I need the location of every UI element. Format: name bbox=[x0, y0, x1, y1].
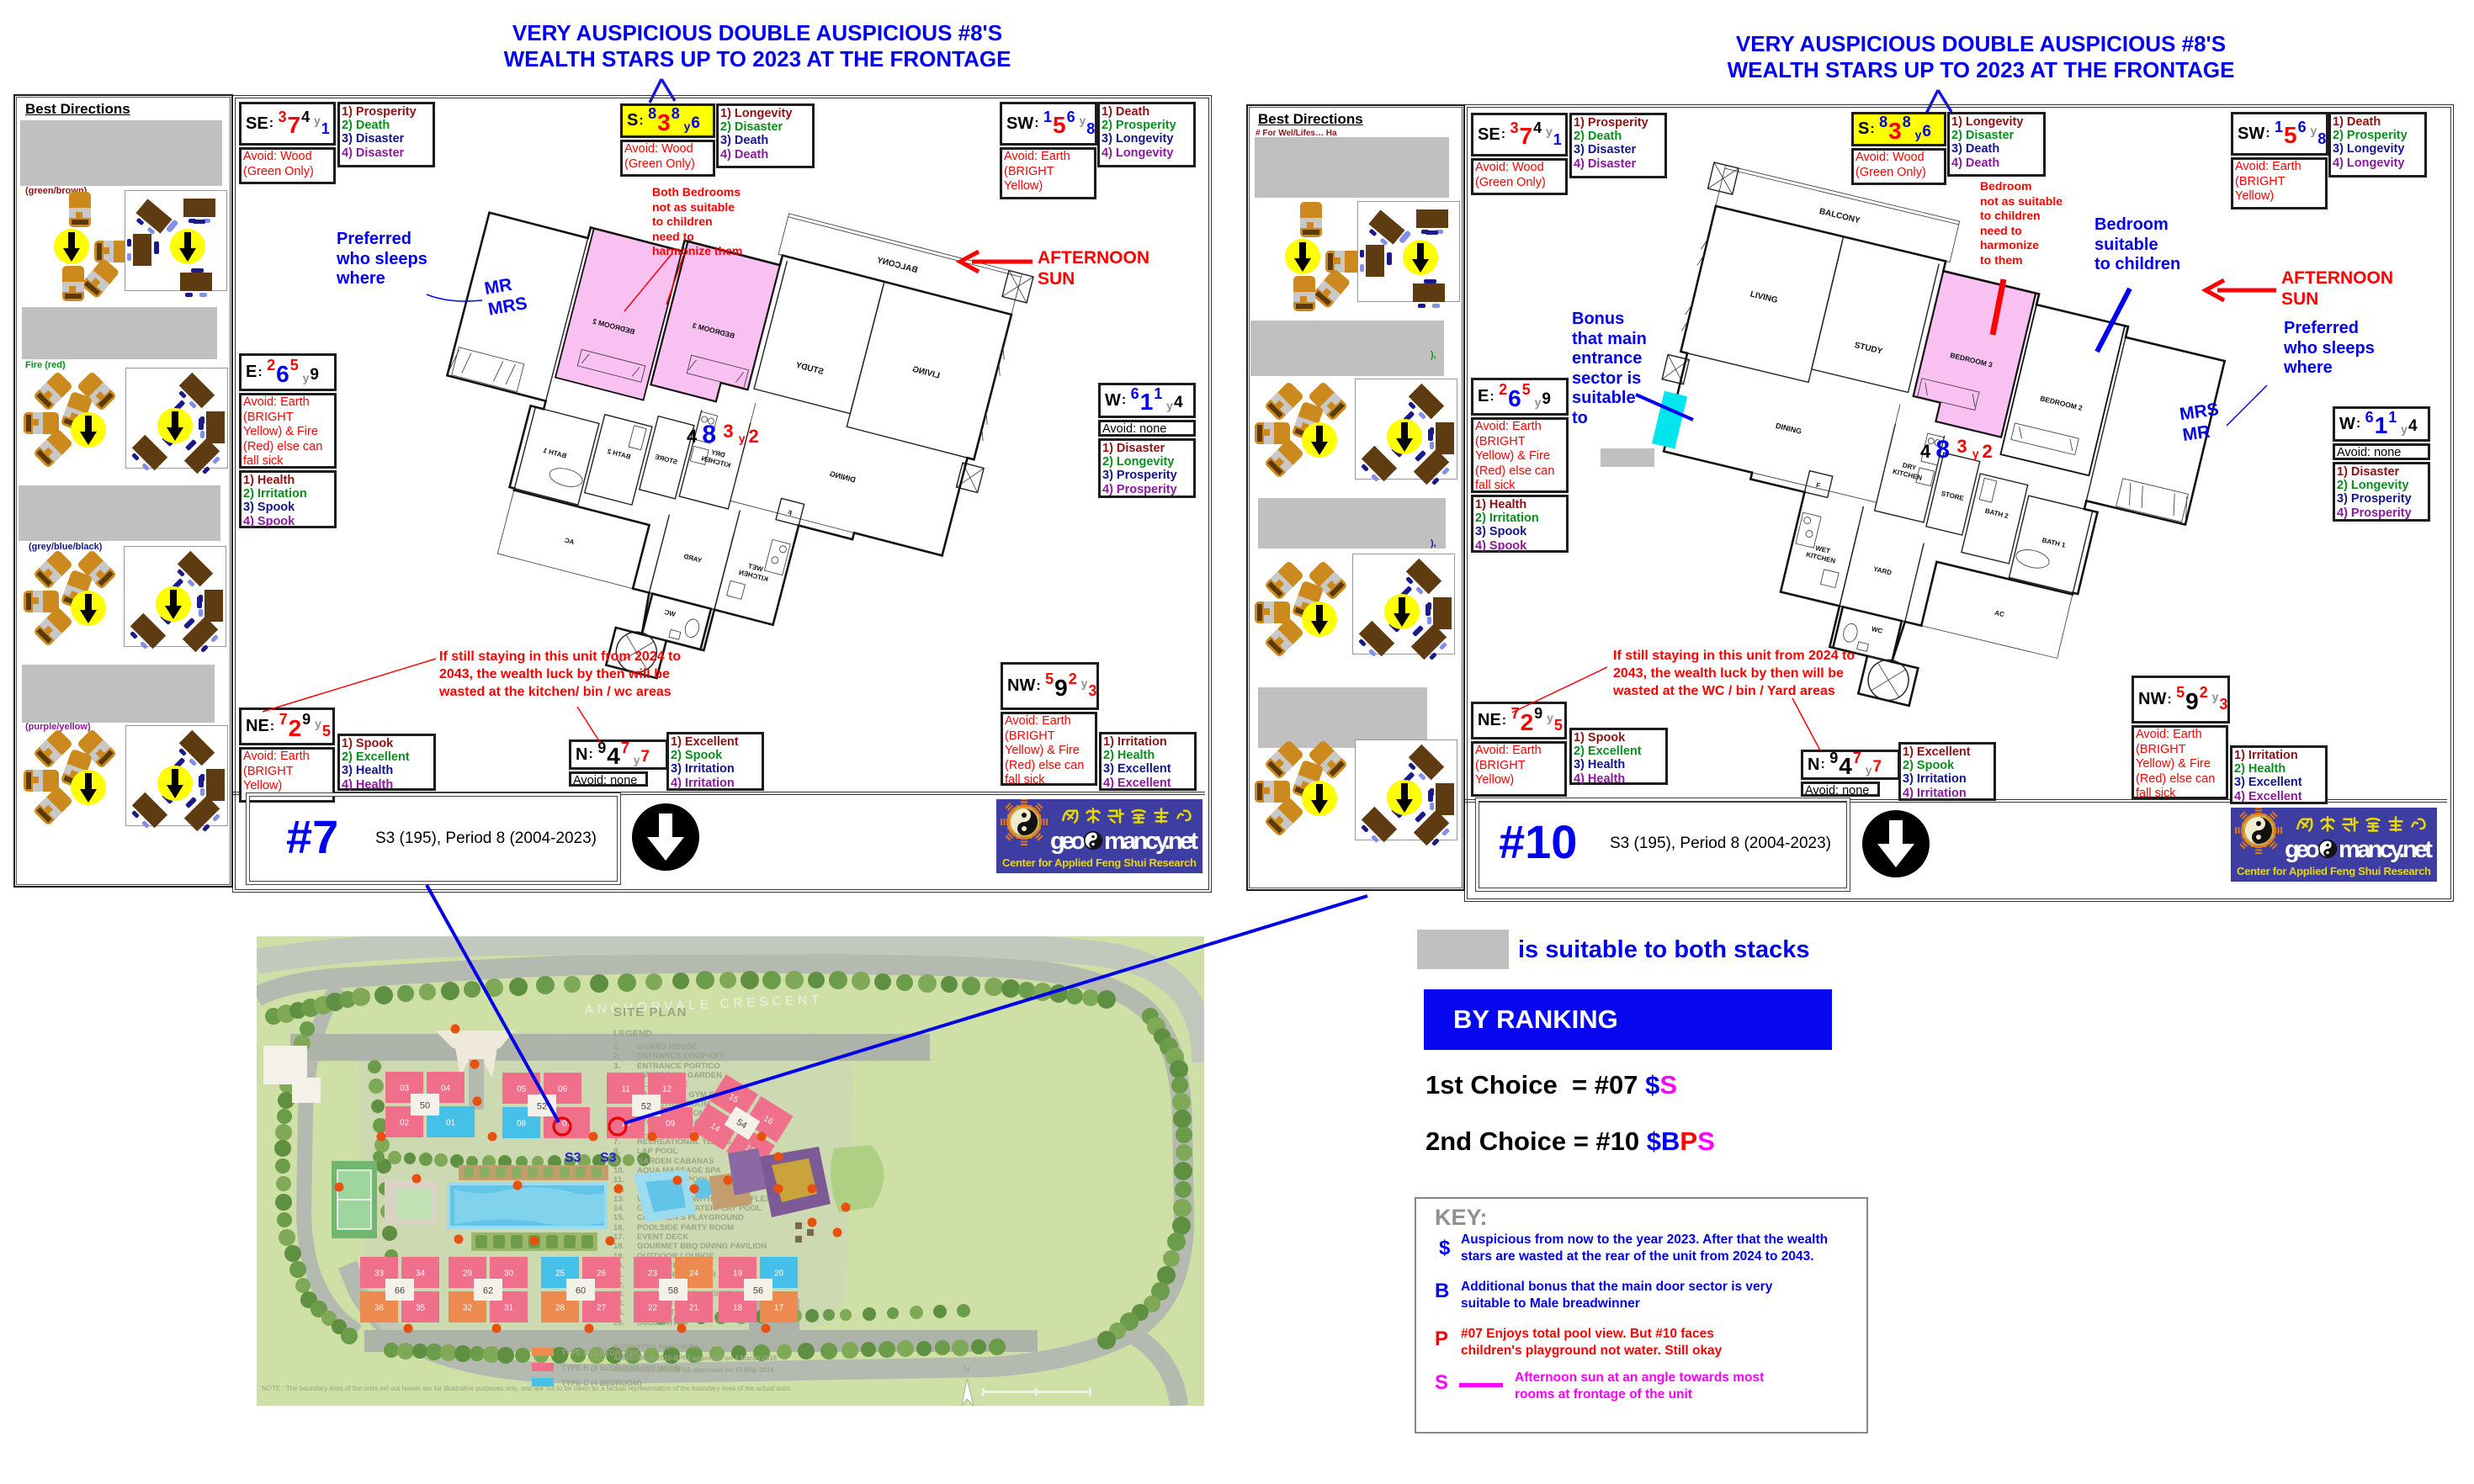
svg-text:BATH 1: BATH 1 bbox=[2041, 537, 2067, 549]
svg-text:GARDEN CABANAS: GARDEN CABANAS bbox=[637, 1157, 714, 1166]
svg-text:YARD: YARD bbox=[682, 553, 703, 564]
svg-text:geo: geo bbox=[2285, 836, 2320, 863]
svg-text:WC: WC bbox=[1871, 625, 1883, 635]
svg-text:STORE: STORE bbox=[654, 453, 678, 466]
svg-text:BATH 2: BATH 2 bbox=[606, 448, 631, 461]
svg-text:SITE PLAN: SITE PLAN bbox=[613, 1005, 687, 1020]
svg-text:3.: 3. bbox=[613, 1062, 620, 1071]
svg-text:mancy.net: mancy.net bbox=[2339, 836, 2433, 863]
svg-text:TYPE A (3 BEDROOM): TYPE A (3 BEDROOM) bbox=[561, 1349, 641, 1357]
svg-text:ENTRANCE PORTICO: ENTRANCE PORTICO bbox=[637, 1062, 720, 1071]
svg-text:14.: 14. bbox=[613, 1204, 624, 1213]
svg-text:BATH 1: BATH 1 bbox=[542, 447, 567, 460]
svg-text:33: 33 bbox=[374, 1269, 385, 1279]
svg-text:05: 05 bbox=[517, 1085, 527, 1094]
svg-text:36: 36 bbox=[374, 1304, 385, 1313]
svg-text:ENTRANCE DROP-OFF: ENTRANCE DROP-OFF bbox=[637, 1052, 725, 1061]
svg-text:mancy.net: mancy.net bbox=[1104, 828, 1198, 855]
svg-text:24: 24 bbox=[689, 1269, 699, 1279]
svg-text:TYPE B (3 BEDROOM PREMIUM): TYPE B (3 BEDROOM PREMIUM) bbox=[561, 1364, 680, 1372]
svg-text:17: 17 bbox=[774, 1304, 784, 1313]
svg-text:17.: 17. bbox=[613, 1232, 624, 1242]
svg-text:STUDY: STUDY bbox=[1854, 341, 1884, 357]
svg-text:66: 66 bbox=[395, 1286, 405, 1296]
svg-text:LIVING: LIVING bbox=[911, 365, 941, 381]
svg-text:GUARD HOUSE: GUARD HOUSE bbox=[637, 1042, 697, 1052]
svg-text:BEDROOM 2: BEDROOM 2 bbox=[2039, 394, 2084, 412]
svg-text:28: 28 bbox=[555, 1304, 565, 1313]
svg-text:60: 60 bbox=[576, 1286, 586, 1296]
svg-text:58: 58 bbox=[668, 1286, 678, 1296]
svg-text:30: 30 bbox=[504, 1269, 514, 1279]
svg-text:11.: 11. bbox=[613, 1175, 624, 1185]
svg-text:1.: 1. bbox=[613, 1042, 620, 1052]
svg-text:13.: 13. bbox=[613, 1195, 624, 1204]
svg-text:AC: AC bbox=[564, 537, 576, 547]
svg-text:34: 34 bbox=[416, 1269, 426, 1279]
svg-text:Center for Applied Feng Shui R: Center for Applied Feng Shui Research bbox=[2237, 865, 2431, 877]
svg-text:2.: 2. bbox=[613, 1052, 620, 1061]
svg-text:Center for Applied Feng Shui R: Center for Applied Feng Shui Research bbox=[1002, 856, 1197, 869]
svg-text:NOTE : The boundary lines of t: NOTE : The boundary lines of the units s… bbox=[262, 1385, 792, 1392]
svg-text:WC: WC bbox=[663, 608, 676, 618]
svg-text:BALCONY: BALCONY bbox=[1818, 207, 1861, 225]
svg-text:F: F bbox=[1815, 481, 1821, 490]
svg-text:STORE: STORE bbox=[1940, 490, 1965, 502]
svg-text:21: 21 bbox=[689, 1304, 699, 1313]
svg-text:S3: S3 bbox=[600, 1151, 617, 1165]
svg-text:31: 31 bbox=[504, 1304, 514, 1313]
svg-text:POOLSIDE PARTY ROOM: POOLSIDE PARTY ROOM bbox=[637, 1223, 734, 1232]
svg-text:50: 50 bbox=[420, 1101, 430, 1111]
svg-text:52: 52 bbox=[641, 1102, 651, 1112]
svg-text:LEGEND: LEGEND bbox=[613, 1029, 652, 1039]
svg-text:S3: S3 bbox=[565, 1151, 581, 1165]
svg-text:20: 20 bbox=[774, 1269, 784, 1279]
svg-text:11: 11 bbox=[621, 1085, 630, 1094]
svg-text:32: 32 bbox=[463, 1304, 473, 1313]
svg-text:26: 26 bbox=[597, 1269, 607, 1279]
svg-text:22: 22 bbox=[648, 1304, 658, 1313]
svg-text:03: 03 bbox=[400, 1084, 410, 1094]
svg-text:7.: 7. bbox=[613, 1137, 620, 1147]
svg-text:15.: 15. bbox=[613, 1213, 624, 1222]
svg-text:35: 35 bbox=[416, 1304, 426, 1313]
svg-text:25: 25 bbox=[555, 1269, 565, 1279]
svg-text:LAP POOL: LAP POOL bbox=[637, 1147, 678, 1156]
svg-text:TYPE C (4 BEDROOM): TYPE C (4 BEDROOM) bbox=[561, 1379, 642, 1387]
svg-text:10.: 10. bbox=[613, 1166, 624, 1175]
svg-text:BALCONY: BALCONY bbox=[876, 256, 919, 275]
svg-text:04: 04 bbox=[441, 1084, 451, 1094]
svg-text:DINING: DINING bbox=[1775, 421, 1802, 436]
svg-text:geo: geo bbox=[1050, 828, 1086, 855]
svg-text:12: 12 bbox=[662, 1085, 672, 1094]
svg-text:EVENT DECK: EVENT DECK bbox=[637, 1232, 688, 1242]
svg-text:16.: 16. bbox=[613, 1223, 624, 1232]
svg-text:18: 18 bbox=[733, 1304, 743, 1313]
svg-text:09: 09 bbox=[666, 1120, 676, 1129]
svg-text:STUDY: STUDY bbox=[794, 361, 825, 377]
svg-text:YARD: YARD bbox=[1872, 565, 1893, 577]
svg-text:27: 27 bbox=[597, 1304, 607, 1313]
svg-text:01: 01 bbox=[446, 1119, 456, 1128]
svg-text:19: 19 bbox=[733, 1269, 743, 1279]
svg-text:02: 02 bbox=[400, 1119, 410, 1128]
svg-text:N: N bbox=[964, 1365, 969, 1375]
svg-text:23: 23 bbox=[648, 1269, 658, 1279]
svg-text:LIVING: LIVING bbox=[1749, 290, 1779, 306]
svg-text:GOURMET BBQ DINING PAVILION: GOURMET BBQ DINING PAVILION bbox=[637, 1242, 767, 1251]
svg-text:DINING: DINING bbox=[829, 469, 857, 485]
svg-text:52: 52 bbox=[537, 1102, 547, 1112]
svg-text:BATH 2: BATH 2 bbox=[1984, 507, 2009, 520]
svg-text:08: 08 bbox=[517, 1120, 527, 1129]
svg-text:F: F bbox=[787, 509, 793, 517]
svg-text:29: 29 bbox=[463, 1269, 473, 1279]
svg-text:AC: AC bbox=[1994, 609, 2005, 619]
svg-text:62: 62 bbox=[483, 1286, 493, 1296]
svg-text:56: 56 bbox=[753, 1286, 763, 1296]
svg-text:06: 06 bbox=[558, 1085, 568, 1094]
svg-text:18.: 18. bbox=[613, 1242, 624, 1251]
